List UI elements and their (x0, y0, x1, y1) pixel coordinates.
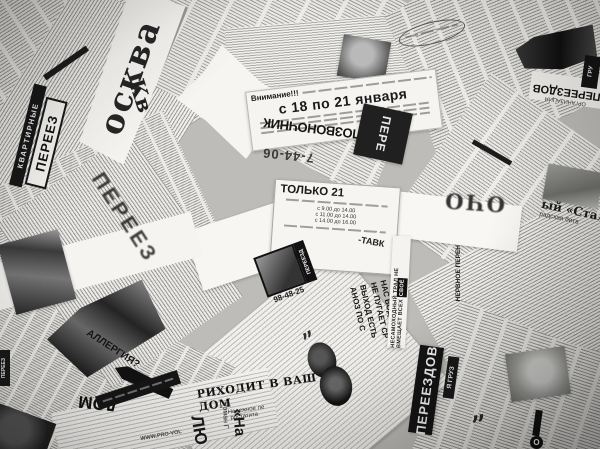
black-strip-pereez-text: ПЕРЕЕЗ (1, 358, 7, 378)
headline-ocho: ОЧО (442, 188, 506, 217)
vertical-na-quote: «На (229, 408, 248, 437)
vertical-nervnoe-text: НЕРВНОЕ ПЕРЕН (455, 245, 462, 301)
vertical-roman: Роман Г (221, 402, 229, 429)
dark-scrap-pere-text: ПЕРЕ (372, 115, 393, 154)
black-strip-gru: ГРУ (581, 55, 600, 89)
dark-scrap-pere: ПЕРЕ (353, 103, 413, 164)
black-circle-o-text: О (533, 438, 539, 447)
strip-svoyo-box: СВОЁ (397, 278, 408, 297)
photo-fragment-face (505, 346, 571, 402)
banner-gruz-text: Я ГРУЗ (446, 366, 456, 389)
black-strip-pereez: ПЕРЕЕЗ (0, 350, 10, 386)
black-strip-gru-text: ГРУ (587, 66, 594, 78)
newspaper-collage-photo: осква Кв Внимание!!! с 18 по 21 января П… (0, 0, 600, 449)
vertical-nervnoe: НЕРВНОЕ ПЕРЕН (455, 245, 469, 317)
headline-kv-text: Кв (124, 75, 158, 115)
black-circle-o: О (530, 436, 543, 449)
